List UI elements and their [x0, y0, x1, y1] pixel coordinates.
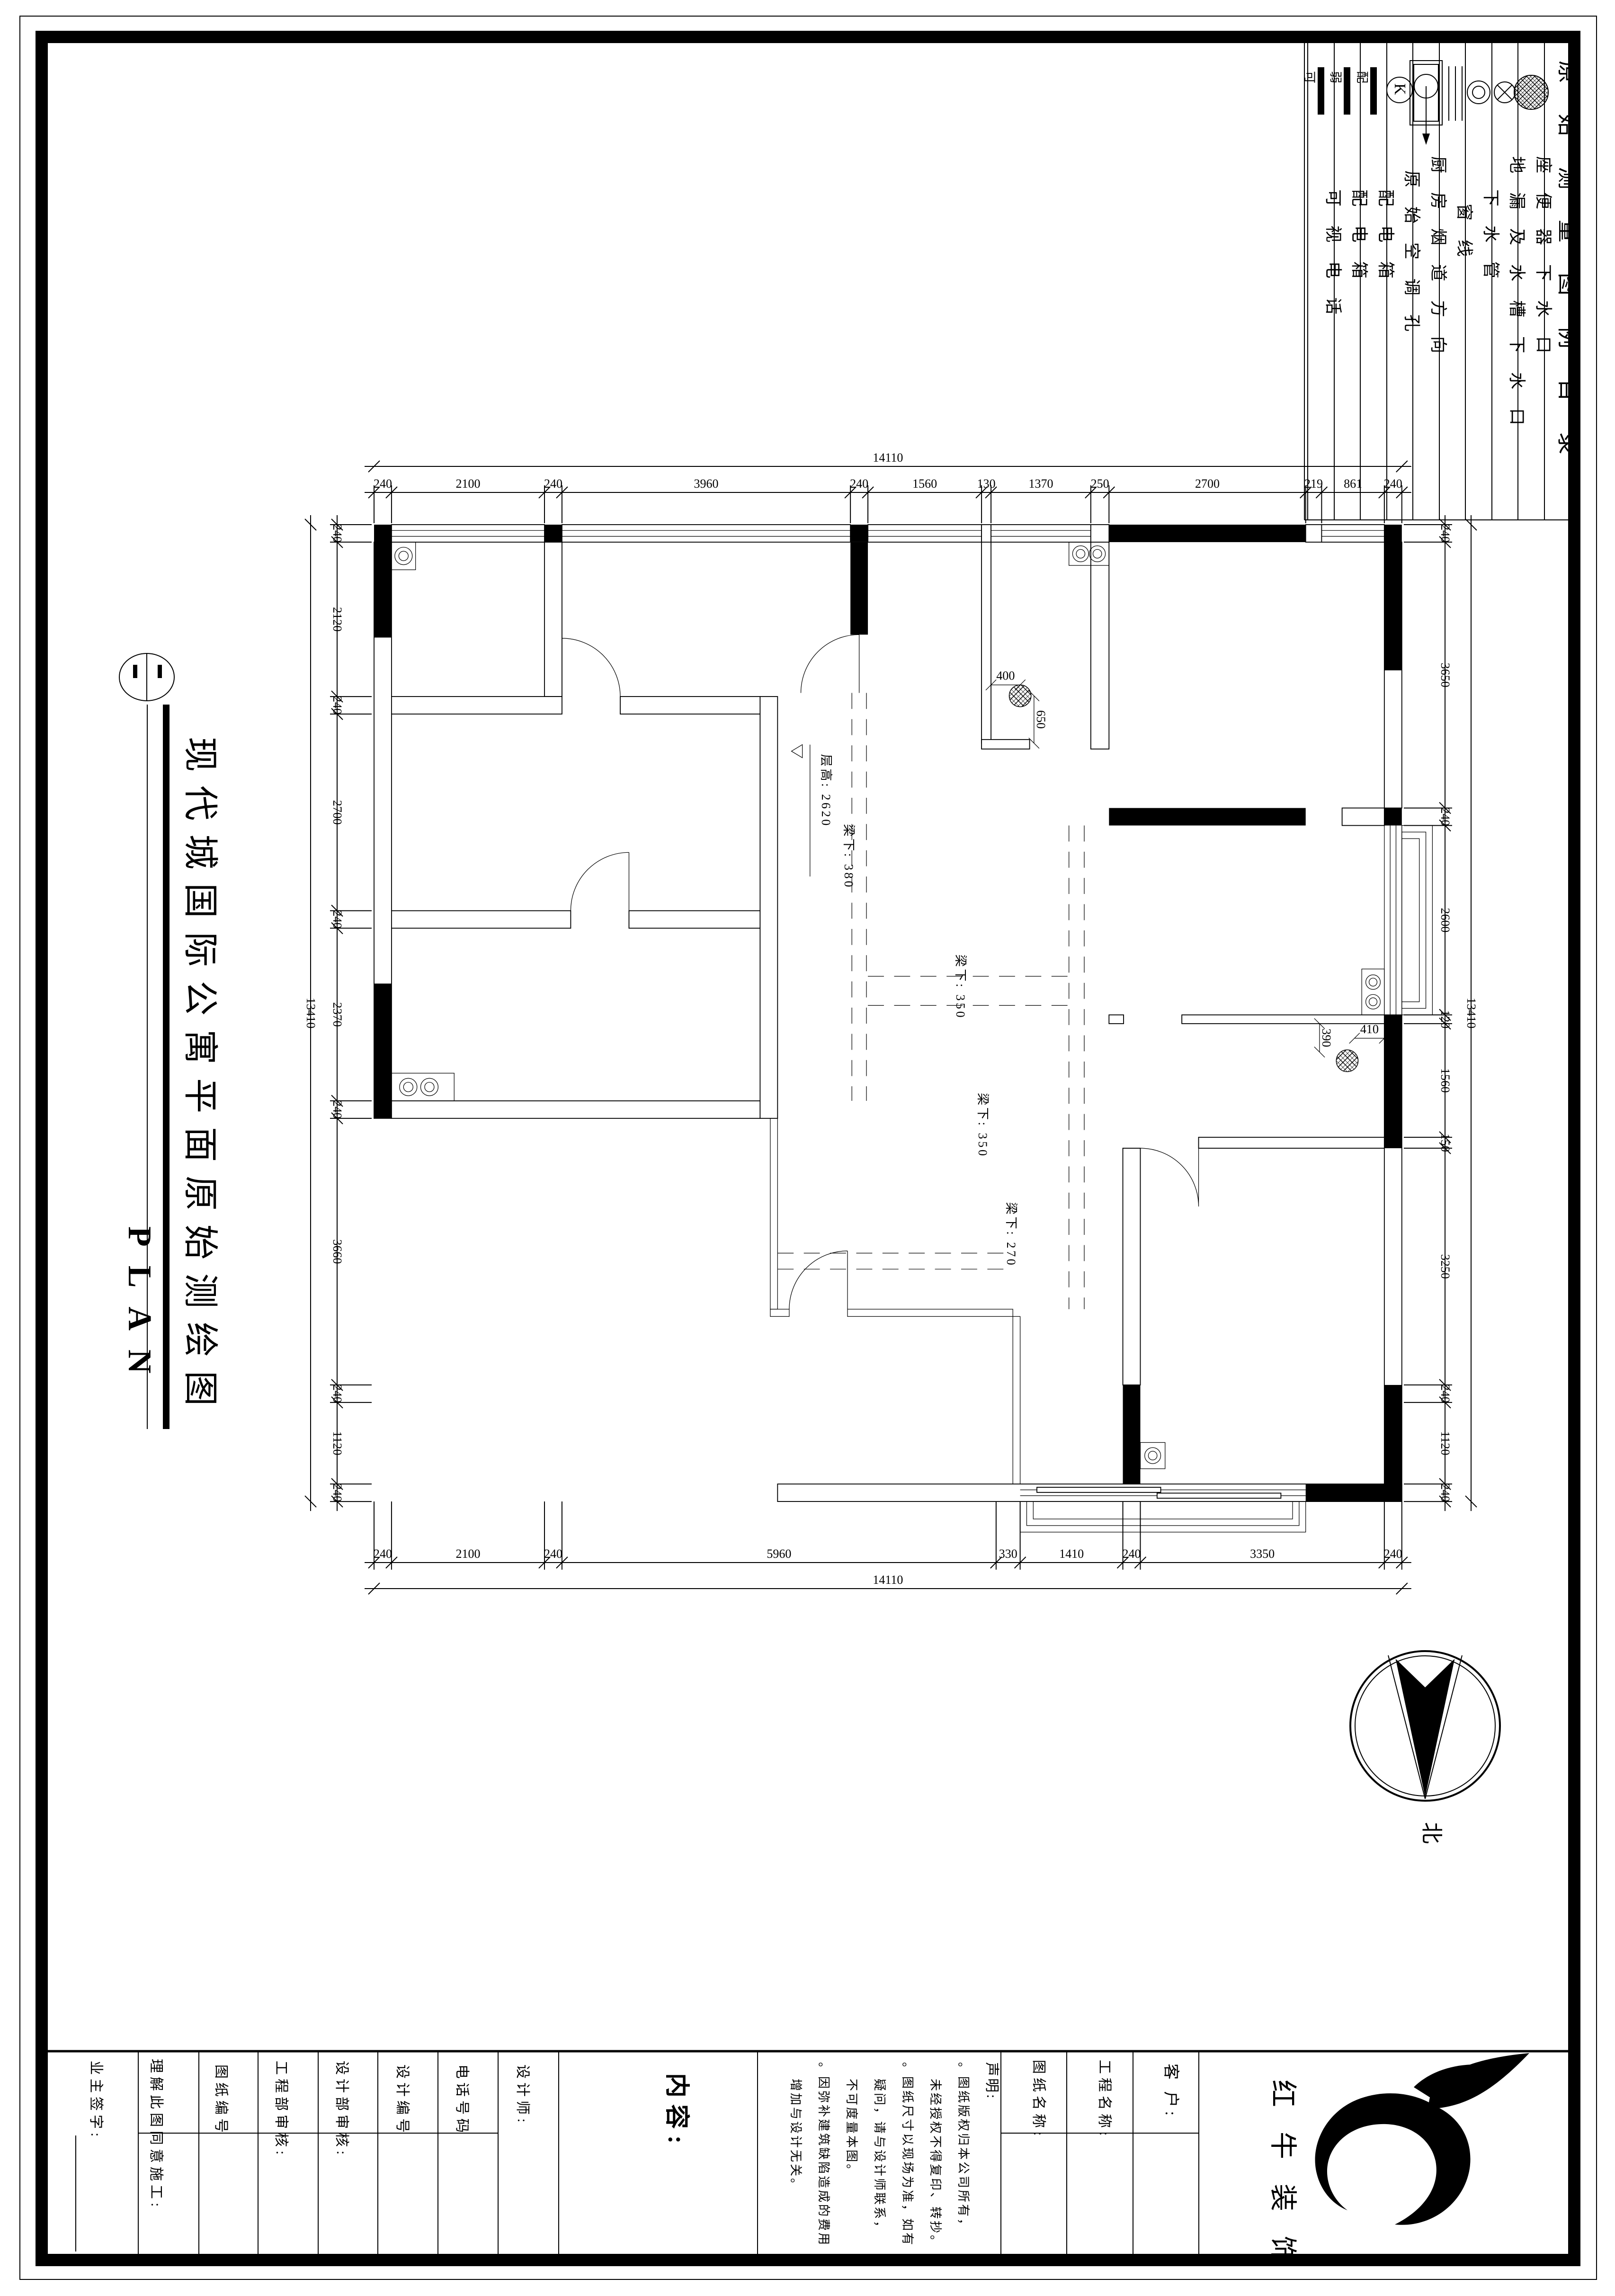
dim-total-top: 14110 — [365, 451, 1411, 472]
phone-label: 电话号码 — [454, 2064, 470, 2136]
legend-item-label: 可视电话 — [1324, 189, 1343, 333]
drains — [392, 542, 1384, 1469]
svg-text:可: 可 — [1303, 71, 1316, 83]
designer-label: 设计师: — [515, 2064, 530, 2126]
page-title: 现代城国际公寓平面原始测绘图 — [180, 737, 219, 1420]
dim-chain-left: 24021202402700240237024036602401120240 — [330, 515, 372, 1511]
dim-value: 240 — [1438, 807, 1452, 826]
dim-value: 240 — [1438, 524, 1452, 543]
company-name: 红牛装饰 — [1267, 2080, 1298, 2288]
drawing-sheet: 原始测量图例目录 K 配 弱 可 座便器下水口 地漏及水槽下水口 下水管 窗线 … — [0, 0, 1615, 2296]
dim-value: 3250 — [1438, 1254, 1452, 1279]
dim-value: 2100 — [455, 477, 480, 491]
declaration-line: 。图纸尺寸以现场为准，如有 — [901, 2062, 914, 2247]
dim-value: 330 — [999, 1547, 1017, 1561]
title-underline-thick — [163, 705, 170, 1429]
dim-chain-bottom: 2402100240596033014102403350240 — [365, 1501, 1411, 1570]
dim-value: 2700 — [330, 800, 344, 825]
dim-total-bottom: 14110 — [365, 1573, 1411, 1594]
project-name-label: 工程名称: — [1097, 2060, 1112, 2139]
window-sash — [1157, 1493, 1281, 1498]
sheet-svg: 原始测量图例目录 K 配 弱 可 座便器下水口 地漏及水槽下水口 下水管 窗线 … — [0, 0, 1615, 2296]
videophone-icon: 可 — [1303, 67, 1324, 115]
dim-value: 240 — [1438, 1385, 1452, 1403]
plan-annotations: 层高: 2620 梁下: 380 梁下: 350 梁下: 350 梁下: 270 — [792, 745, 1018, 1268]
dim-value: 3960 — [694, 477, 719, 491]
svg-text:650: 650 — [1034, 710, 1048, 729]
dim-value: 240 — [544, 1547, 562, 1561]
legend-item-label: 地漏及水槽下水口 — [1508, 156, 1526, 444]
declaration-line: 增加与设计无关。 — [789, 2079, 803, 2192]
legend-item-label: 窗线 — [1455, 204, 1474, 276]
design-no-label: 设计编号 — [394, 2064, 410, 2136]
legend-item-label: 厨房烟道方向 — [1429, 156, 1448, 372]
svg-text:梁下: 270: 梁下: 270 — [1004, 1202, 1018, 1268]
svg-text:梁下: 380: 梁下: 380 — [842, 824, 856, 889]
north-label: 北 — [1419, 1822, 1444, 1844]
svg-text:400: 400 — [996, 669, 1015, 683]
dim-value: 219 — [1304, 477, 1323, 491]
svg-text:K: K — [1391, 83, 1409, 95]
interior-dims: 400 650 410 390 — [986, 669, 1390, 1057]
drawing-title: 现代城国际公寓平面原始测绘图 PLAN — [119, 653, 219, 1429]
dim-value: 240 — [850, 477, 868, 491]
wall-right — [1384, 542, 1402, 1501]
declaration-line: 疑问，请与设计师联系， — [873, 2079, 886, 2235]
dim-value: 3350 — [1250, 1547, 1275, 1561]
dim-value: 120 — [1438, 1010, 1452, 1028]
bay-window-right — [1402, 825, 1433, 1015]
dim-value: 240 — [330, 1385, 344, 1403]
page-title-en: PLAN — [121, 1226, 158, 1393]
toilet-drain — [1009, 685, 1031, 706]
dim-value: 240 — [1384, 1547, 1402, 1561]
kitchen-flue-icon — [1410, 61, 1442, 145]
bay-window-bottom — [1020, 1501, 1306, 1532]
drawing-no-label: 图纸编号 — [213, 2064, 229, 2136]
legend-item-label: 配电箱 — [1376, 189, 1395, 297]
title-block: 业主签字: 理解此图同意施工: 图纸编号 工程部审核: 设计部审核: 设计编号 … — [48, 2051, 1568, 2288]
declaration-line: 不可度量本图。 — [845, 2079, 858, 2178]
dim-value: 240 — [330, 524, 344, 543]
dim-value: 861 — [1344, 477, 1362, 491]
dim-value: 14110 — [873, 1573, 903, 1587]
toilet-drain — [1336, 1050, 1358, 1072]
company-logo — [1315, 2053, 1529, 2225]
dim-lines — [365, 485, 1411, 523]
dim-value: 3650 — [1438, 663, 1452, 688]
floor-plan: 400 650 410 390 层高: 2620 梁下: 380 梁下: 350… — [374, 525, 1432, 1532]
dim-value: 2600 — [1438, 908, 1452, 932]
dim-value: 5960 — [767, 1547, 791, 1561]
dim-value: 240 — [330, 696, 344, 715]
dim-value: 13410 — [304, 998, 318, 1028]
legend-table: 原始测量图例目录 K 配 弱 可 座便器下水口 地漏及水槽下水口 下水管 窗线 … — [1303, 43, 1580, 520]
dim-value: 150 — [1438, 1134, 1452, 1152]
customer-label: 客 户: — [1162, 2064, 1180, 2119]
dim-value: 3660 — [330, 1239, 344, 1264]
svg-text:配: 配 — [1355, 71, 1369, 83]
dim-value: 2370 — [330, 1002, 344, 1027]
dim-value: 2700 — [1195, 477, 1220, 491]
design-review-label: 设计部审核: — [334, 2061, 349, 2158]
dim-value: 2100 — [455, 1547, 480, 1561]
wall-left — [374, 542, 760, 1118]
svg-text:410: 410 — [1360, 1022, 1379, 1036]
agree-label: 理解此图同意施工: — [148, 2059, 164, 2210]
floor-drain-icon — [1494, 82, 1515, 103]
declaration-line: 。图纸版权归本公司所有， — [956, 2062, 970, 2233]
eng-review-label: 工程部审核: — [273, 2061, 289, 2158]
dim-value: 240 — [330, 910, 344, 929]
drain-pipe-icon — [1467, 81, 1490, 104]
window-lines — [1384, 825, 1402, 1015]
legend-item-label: 下水管 — [1481, 189, 1500, 297]
svg-text:梁下: 350: 梁下: 350 — [954, 955, 967, 1020]
dim-value: 13410 — [1464, 998, 1478, 1028]
north-arrow — [1396, 1660, 1454, 1797]
declaration-line: 声明: — [984, 2062, 999, 2100]
wall-bottom — [777, 1484, 1401, 1501]
dim-value: 240 — [544, 477, 562, 491]
drawing-name-label: 图纸名称: — [1031, 2060, 1046, 2139]
legend-item-label: 配电箱 — [1350, 189, 1369, 297]
dim-value: 240 — [330, 1100, 344, 1119]
dim-value: 1410 — [1059, 1547, 1084, 1561]
dim-value: 1120 — [330, 1431, 344, 1455]
dim-value: 1560 — [1438, 1068, 1452, 1093]
dim-value: 240 — [330, 1483, 344, 1502]
weak-box-icon: 弱 — [1329, 67, 1350, 115]
dim-chain-top: 2402100240396024015601301370250270021986… — [365, 477, 1411, 523]
dim-value: 14110 — [873, 451, 903, 465]
dim-chain-right: 24036502402600120156015032502401120240 — [1404, 515, 1452, 1511]
dim-value: 250 — [1091, 477, 1109, 491]
svg-text:390: 390 — [1320, 1028, 1333, 1047]
wall-top — [374, 525, 1402, 542]
dim-value: 240 — [1384, 477, 1402, 491]
dim-value: 130 — [977, 477, 996, 491]
dim-value: 2120 — [330, 607, 344, 632]
content-label: 内容: — [663, 2073, 690, 2150]
declaration-line: 。因弥补建筑缺陷造成的费用 — [817, 2062, 830, 2247]
svg-text:梁下: 350: 梁下: 350 — [976, 1093, 990, 1158]
interior-walls — [392, 542, 1384, 1484]
ac-hole-icon: K — [1387, 77, 1412, 103]
legend-title: 原始测量图例目录 — [1555, 61, 1580, 485]
dim-value: 240 — [1438, 1483, 1452, 1502]
declaration-line: 未经授权不得复印、转抄。 — [928, 2079, 942, 2249]
dim-value: 1120 — [1438, 1431, 1452, 1455]
window-line-icon — [1442, 66, 1462, 121]
legend-item-label: 座便器下水口 — [1534, 156, 1553, 372]
dim-value: 240 — [374, 477, 392, 491]
power-box-icon: 配 — [1355, 67, 1377, 115]
toilet-drain-icon — [1514, 75, 1548, 109]
north-compass: 北 — [1350, 1651, 1500, 1844]
window-sash — [1037, 1487, 1161, 1492]
dim-value: 1560 — [912, 477, 937, 491]
dim-total-right: 13410 — [1464, 515, 1478, 1511]
dim-value: 240 — [1122, 1547, 1141, 1561]
dim-value: 240 — [374, 1547, 392, 1561]
dim-value: 1370 — [1028, 477, 1053, 491]
svg-text:弱: 弱 — [1329, 71, 1342, 83]
owner-sign-label: 业主签字: — [88, 2061, 104, 2140]
dim-total-left: 13410 — [304, 515, 318, 1511]
svg-text:层高: 2620: 层高: 2620 — [819, 754, 833, 828]
legend-item-label: 原始空调孔 — [1402, 170, 1421, 350]
